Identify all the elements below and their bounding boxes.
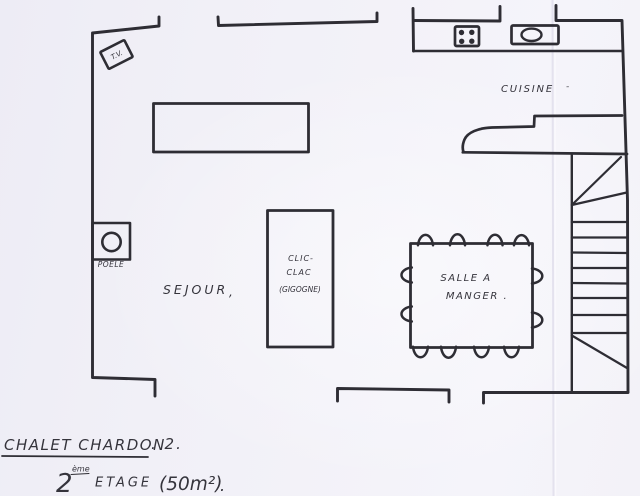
sejour-mark: , <box>229 285 233 299</box>
cooktop-icon <box>455 27 479 47</box>
kitchen-bar-front-edge <box>463 152 627 154</box>
sejour-label: SEJOUR <box>163 282 228 297</box>
scan-crease <box>553 0 556 496</box>
kitchen: CUISINE - <box>414 26 628 155</box>
ordinal-underline <box>71 474 89 475</box>
bottom-wall-segment <box>338 389 450 403</box>
poele-stove: POELE <box>93 223 131 269</box>
stair-tread <box>572 283 627 284</box>
clic-clac-label-3: (GIGOGNE) <box>279 285 321 294</box>
plan-title: CHALET CHARDON <box>4 436 166 454</box>
walls <box>93 6 629 404</box>
kitchen-left-wall <box>413 9 414 52</box>
plan-subtitle: 2 ème ETAGE (50m²) . <box>56 457 228 496</box>
stair-tread <box>572 253 627 254</box>
title-block: CHALET CHARDON . 2. 2 ème ETAGE (50m²) . <box>2 435 228 496</box>
clic-clac-label-2: CLAC <box>286 268 311 277</box>
stair-winder <box>572 336 627 369</box>
tv-icon: T.V. <box>100 40 133 69</box>
salle-a-manger-label-1: SALLE A <box>440 273 491 284</box>
staircase <box>572 155 627 392</box>
cuisine-mark: - <box>566 82 569 92</box>
top-wall-segment <box>414 7 501 22</box>
kitchen-bar-counter <box>463 116 622 152</box>
clic-clac-sofa: CLIC- CLAC (GIGOGNE) <box>268 211 334 348</box>
left-wall <box>93 17 160 396</box>
sejour: T.V. POELE SEJOUR , CLIC- CLAC (GIGOGNE) <box>93 40 334 347</box>
floor-plan-svg: CUISINE - T.V. POELE SEJOUR , <box>0 0 640 496</box>
cuisine-label: CUISINE <box>501 84 554 95</box>
clic-clac-label-1: CLIC- <box>288 254 314 263</box>
poele-label: POELE <box>98 260 125 269</box>
sink-icon <box>512 26 559 45</box>
sideboard <box>154 104 309 153</box>
title-underline <box>2 456 148 457</box>
stair-winder <box>572 157 621 205</box>
plan-title-suffix: . 2. <box>151 435 183 453</box>
tv-label: T.V. <box>110 49 124 62</box>
scanned-floor-plan: CUISINE - T.V. POELE SEJOUR , <box>0 0 640 496</box>
dining-set: SALLE A MANGER . <box>401 234 542 357</box>
top-wall-segment <box>218 13 377 26</box>
stair-winder <box>572 193 627 206</box>
salle-a-manger-label-2: MANGER . <box>446 291 508 302</box>
